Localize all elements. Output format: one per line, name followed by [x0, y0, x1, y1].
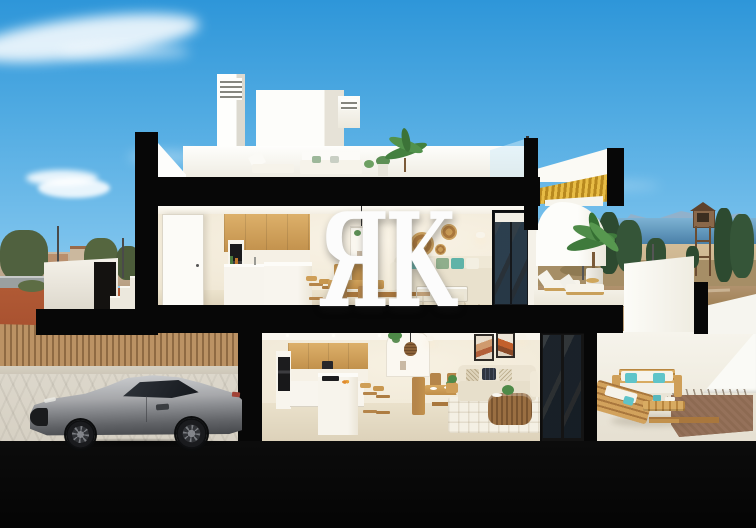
built-in-oven-lower: [278, 357, 290, 391]
framed-art: [496, 332, 515, 358]
interior-door: [162, 214, 204, 306]
sofa-pillow-cream: [466, 258, 479, 269]
terrace-parapet: [624, 256, 694, 332]
side-stool-plant: [448, 375, 457, 383]
cut-pergola-end: [607, 148, 624, 206]
car-wheel-front: [66, 420, 95, 449]
ceiling-spotlight: [286, 334, 289, 337]
terrace-side-table: [586, 278, 599, 283]
patterned-pillow: [466, 369, 479, 381]
car-body: [30, 372, 242, 438]
rattan-coffee-table: [488, 393, 532, 425]
cut-terrace-right: [694, 282, 708, 334]
chimney-small-vent: [341, 99, 357, 110]
car-taillight: [232, 392, 240, 398]
wall-sconce: [518, 334, 526, 339]
counter-bottle: [235, 258, 238, 264]
roof-sofa-pillow: [330, 156, 339, 163]
street-lamp: [122, 238, 124, 278]
navy-pillow: [482, 368, 496, 380]
bar-stool: [306, 276, 317, 281]
coffee-table-plant: [502, 385, 514, 395]
sun-lounger: [566, 284, 604, 295]
cut-left-wall: [135, 132, 158, 334]
teal-pillow: [625, 373, 637, 383]
cloud-streak: [0, 4, 202, 72]
cloud-streak-2: [60, 44, 190, 60]
rattan-pendant-lamp: [404, 342, 417, 356]
chimney-vent: [220, 78, 242, 100]
watermark-logo: ЯK: [318, 196, 452, 326]
fruit-bowl: [342, 380, 351, 384]
patio-sofa-arm: [674, 375, 682, 397]
patio-ramp: [703, 331, 756, 393]
table-tray: [665, 397, 675, 401]
door-glass: [495, 222, 510, 304]
patio-coffee-table: [643, 401, 685, 411]
door-roller-blind: [495, 213, 527, 222]
car-wheel-rear: [176, 418, 207, 449]
dining-chair-side: [412, 377, 425, 415]
cypress-tree: [730, 214, 754, 278]
cut-left-slab: [36, 309, 158, 335]
sofa-pillow-teal: [451, 258, 464, 269]
table-teal-box: [653, 395, 661, 401]
cloud-puff-2: [38, 178, 110, 198]
roof-plant-pot: [378, 164, 388, 176]
render-canvas: ЯK: [0, 0, 756, 528]
kitchen-island-lower: [318, 373, 358, 435]
patterned-pillow: [499, 369, 512, 381]
car-grille: [30, 408, 48, 426]
patio-sliding-door: [540, 332, 584, 441]
teal-pillow: [623, 396, 635, 406]
door-glass: [512, 222, 527, 304]
kitchen-island: [264, 262, 312, 306]
wheel-spokes: [72, 426, 88, 442]
town-bush: [18, 280, 46, 292]
coffee-table-dish: [492, 393, 502, 397]
sports-car: [28, 346, 248, 450]
watchtower-window: [697, 213, 709, 222]
cooktop: [322, 376, 339, 381]
place-setting: [430, 387, 437, 390]
bar-stool: [360, 383, 371, 388]
door-glass: [564, 335, 581, 438]
cut-right-post: [524, 138, 538, 230]
wall-sconce: [476, 232, 485, 238]
wheel-spokes: [183, 425, 200, 442]
car-side-vent: [156, 404, 169, 411]
watchtower-leg: [709, 226, 711, 276]
roof-plant-small: [364, 160, 374, 168]
car-door-line: [146, 396, 147, 422]
kitchen-faucet: [254, 257, 256, 265]
patio: [597, 331, 756, 441]
bar-stool: [373, 386, 384, 391]
side-stool: [446, 383, 458, 393]
town-tree: [0, 230, 48, 282]
cut-lower-right-wall: [584, 331, 597, 445]
door-glass: [543, 335, 561, 438]
counter-bottle: [230, 256, 233, 264]
watchtower-brace: [695, 240, 711, 242]
table-shelf: [649, 419, 679, 423]
lower-floor-interior: [262, 331, 584, 441]
sofa-arm: [530, 371, 538, 397]
door-handle: [196, 264, 199, 267]
niche-vase: [400, 361, 406, 370]
roof-sofa-pillow: [312, 156, 321, 163]
roof-palm-trunk: [404, 158, 406, 172]
teal-pillow: [653, 373, 665, 383]
cut-foundation: [0, 441, 756, 528]
glass-railing: [490, 138, 528, 179]
framed-art: [474, 334, 494, 361]
roof-lounger: [252, 164, 294, 173]
